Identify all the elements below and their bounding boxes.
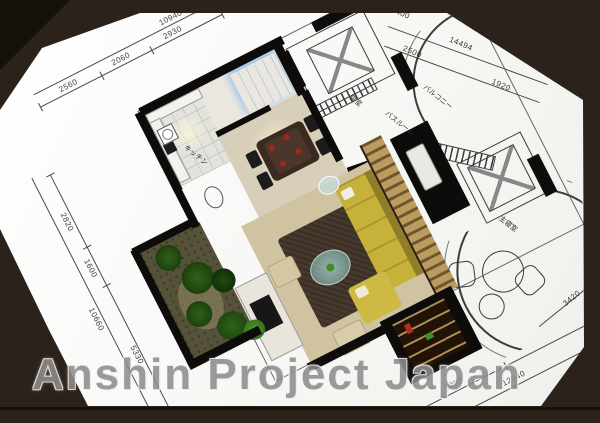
dimension-tick	[168, 411, 176, 416]
watermark-text: Anshin Project Japan	[32, 350, 592, 400]
frame-bottom-line	[0, 407, 600, 410]
floorplan-render-image: 2560 2060 2930 10940 2400 2500 14494 192…	[0, 0, 600, 423]
dimension-tick	[38, 103, 43, 111]
